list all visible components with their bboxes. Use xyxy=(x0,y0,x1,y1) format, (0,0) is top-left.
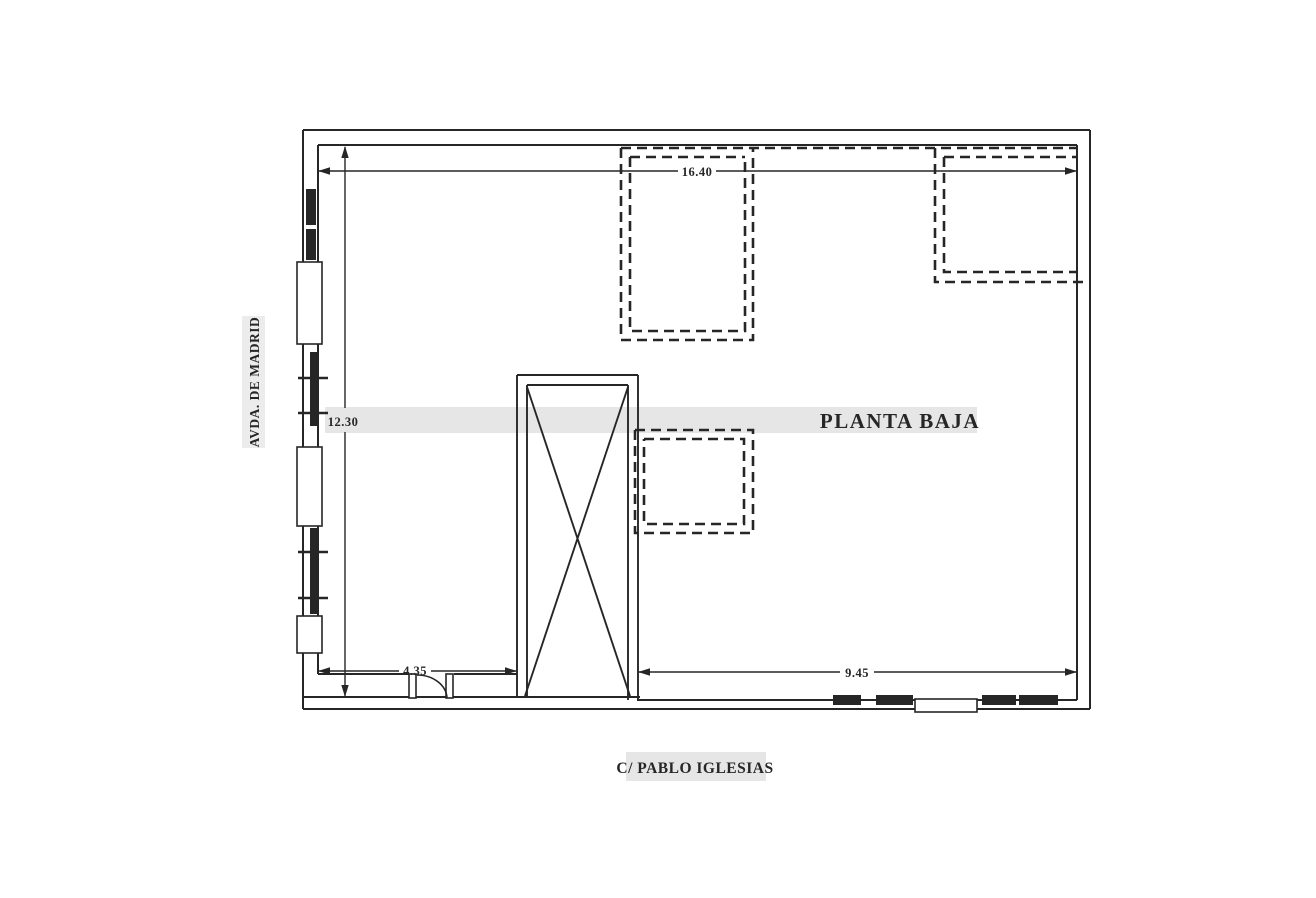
overhang-dashed-lines xyxy=(621,148,1088,533)
dimension-bottom-left: 4.35 xyxy=(318,664,517,678)
overhang-middle-outer xyxy=(635,430,753,533)
bottom-window-bar-3 xyxy=(982,695,1016,705)
left-wall-recess-2 xyxy=(297,447,322,526)
left-wall-door-leaf-lower xyxy=(306,229,316,260)
bottom-window-bar-1 xyxy=(833,695,861,705)
overhang-center-inner xyxy=(630,157,745,331)
dim-top-arrow-left xyxy=(318,167,330,174)
left-wall-recess-1 xyxy=(297,262,322,344)
dim-top-arrow-right xyxy=(1065,167,1077,174)
bottom-window-sill xyxy=(915,699,977,712)
dimension-left: 12.30 xyxy=(328,146,359,697)
left-wall-openings xyxy=(297,189,328,653)
left-window-1-frame xyxy=(310,352,317,426)
left-window-2-frame xyxy=(310,528,317,614)
dim-br-arrow-left xyxy=(638,668,650,675)
dim-top-label: 16.40 xyxy=(682,165,713,179)
dim-left-arrow-bottom xyxy=(341,685,348,697)
left-wall-door-leaf-upper xyxy=(306,189,316,225)
left-wall-recess-3 xyxy=(297,616,322,653)
bottom-window-bar-4 xyxy=(1019,695,1058,705)
dim-br-label: 9.45 xyxy=(845,666,869,680)
dim-left-arrow-top xyxy=(341,146,348,158)
floor-plan-drawing: 16.40 12.30 4.35 9.45 PLANTA BAJA AVDA. … xyxy=(0,0,1316,898)
dimension-top: 16.40 xyxy=(318,165,1077,179)
dim-br-arrow-right xyxy=(1065,668,1077,675)
street-label-left: AVDA. DE MADRID xyxy=(247,317,262,448)
stair-cross-diagonal-a xyxy=(527,387,630,696)
overhang-right-inner xyxy=(944,157,1077,272)
dimension-bottom-right: 9.45 xyxy=(638,666,1077,680)
dim-bl-label: 4.35 xyxy=(403,664,427,678)
door-swing-arc xyxy=(417,675,447,698)
bottom-window-bar-2 xyxy=(876,695,913,705)
dim-left-label: 12.30 xyxy=(328,415,359,429)
overhang-middle-inner xyxy=(644,439,744,524)
stair-cross-diagonal-b xyxy=(525,387,628,696)
plan-title: PLANTA BAJA xyxy=(820,409,980,433)
street-label-bottom: C/ PABLO IGLESIAS xyxy=(616,760,773,777)
floor-plan-page: 16.40 12.30 4.35 9.45 PLANTA BAJA AVDA. … xyxy=(0,0,1316,898)
